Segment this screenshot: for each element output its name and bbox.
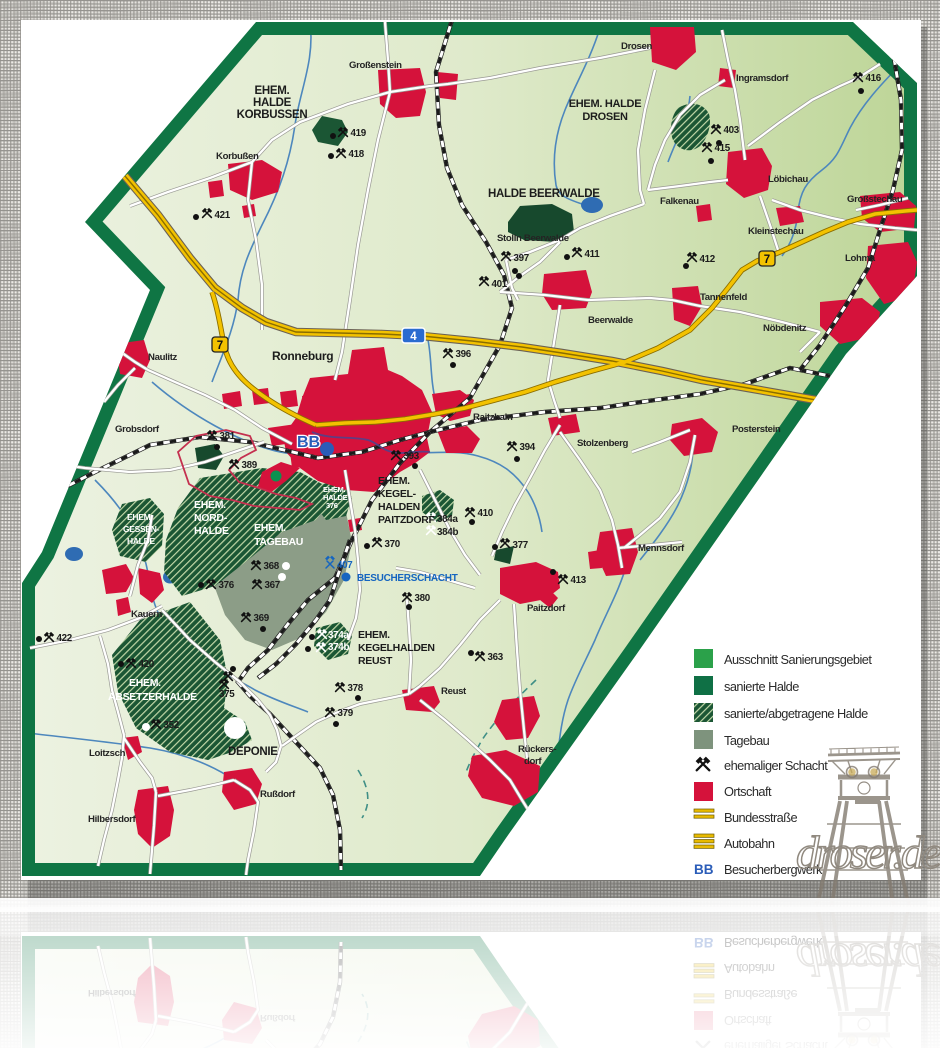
svg-text:412: 412 [700,254,716,265]
svg-text:394: 394 [520,442,536,453]
svg-text:EHEM.: EHEM. [129,677,161,689]
svg-text:Drosen: Drosen [621,41,652,52]
svg-text:Mennsdorf: Mennsdorf [638,543,685,554]
svg-text:KEGELHALDEN: KEGELHALDEN [358,642,435,654]
svg-text:BB: BB [297,434,320,451]
svg-text:Falkenau: Falkenau [660,196,699,207]
svg-text:KORBUSSEN: KORBUSSEN [237,109,308,121]
svg-text:369: 369 [254,613,270,624]
svg-text:Kleinstechau: Kleinstechau [748,226,804,237]
svg-text:EHEM.: EHEM. [378,475,410,487]
svg-text:415: 415 [715,143,731,154]
svg-text:420: 420 [139,659,155,670]
svg-text:4: 4 [410,331,417,343]
svg-text:Nöbdenitz: Nöbdenitz [763,323,807,334]
svg-text:Beerwalde: Beerwalde [588,315,633,326]
svg-text:Ingramsdorf: Ingramsdorf [736,73,789,84]
svg-text:Bundesstraße: Bundesstraße [724,810,798,825]
svg-text:376: 376 [219,580,235,591]
svg-text:HALDE: HALDE [194,525,229,537]
svg-text:411: 411 [585,249,601,260]
svg-text:Korbußen: Korbußen [216,151,259,162]
svg-text:376: 376 [326,501,338,510]
svg-text:352: 352 [164,720,180,731]
svg-text:Großstechau: Großstechau [847,194,903,205]
svg-text:DROSEN: DROSEN [582,111,628,123]
svg-text:Rückers-: Rückers- [518,744,556,755]
svg-text:396: 396 [456,349,472,360]
svg-text:401: 401 [492,279,508,290]
svg-text:Löbichau: Löbichau [768,174,808,185]
svg-text:378: 378 [348,683,364,694]
svg-text:HALDEN: HALDEN [378,501,420,513]
svg-text:EHEM. HALDE: EHEM. HALDE [569,98,641,110]
svg-text:HALDE BEERWALDE: HALDE BEERWALDE [488,188,600,200]
svg-text:HALDE: HALDE [253,97,292,109]
svg-text:Reust: Reust [441,686,467,697]
svg-text:droser.de: droser.de [796,827,940,879]
svg-text:EHEM.: EHEM. [194,499,226,511]
svg-text:Kauern: Kauern [131,609,162,620]
svg-text:Paitzdorf: Paitzdorf [527,603,566,614]
svg-text:421: 421 [215,210,231,221]
svg-text:EHEM.: EHEM. [254,522,286,534]
svg-text:410: 410 [478,508,494,519]
svg-text:Stolzenberg: Stolzenberg [577,438,629,449]
svg-text:EHEM.: EHEM. [255,85,290,97]
svg-text:379: 379 [338,708,354,719]
svg-text:384a: 384a [437,514,458,525]
svg-text:419: 419 [351,128,367,139]
svg-text:HALDE: HALDE [127,536,155,546]
svg-text:403: 403 [724,125,740,136]
svg-text:375: 375 [219,689,235,700]
svg-text:BESUCHERSCHACHT: BESUCHERSCHACHT [357,573,458,584]
svg-text:Loitzsch: Loitzsch [89,748,126,759]
svg-text:368: 368 [264,561,280,572]
svg-text:sanierte/abgetragene Halde: sanierte/abgetragene Halde [724,706,868,721]
svg-text:Autobahn: Autobahn [724,836,775,851]
svg-text:380: 380 [415,593,431,604]
svg-text:374b: 374b [328,642,349,653]
svg-text:NORD-: NORD- [194,512,228,524]
svg-text:sanierte Halde: sanierte Halde [724,679,799,694]
svg-text:363: 363 [488,652,504,663]
svg-text:Tagebau: Tagebau [724,733,770,748]
svg-text:Grobsdorf: Grobsdorf [115,424,160,435]
svg-text:DEPONIE: DEPONIE [228,746,278,758]
svg-text:GESSEN-: GESSEN- [123,524,160,534]
svg-text:377: 377 [513,540,529,551]
svg-text:Ortschaft: Ortschaft [724,784,772,799]
svg-text:374a: 374a [328,630,349,641]
svg-text:REUST: REUST [358,655,393,667]
svg-text:413: 413 [571,575,587,586]
svg-text:Raitzhain: Raitzhain [473,412,513,423]
svg-text:Hilbersdorf: Hilbersdorf [88,814,136,825]
svg-text:KEGEL-: KEGEL- [378,488,417,500]
svg-text:EHEM.: EHEM. [127,512,152,522]
svg-text:393: 393 [404,451,420,462]
svg-text:EHEM.: EHEM. [358,629,390,641]
svg-text:Ronneburg: Ronneburg [272,349,333,363]
svg-text:Ausschnitt Sanierungsgebiet: Ausschnitt Sanierungsgebiet [724,652,872,667]
svg-text:Tannenfeld: Tannenfeld [700,292,747,303]
svg-text:381: 381 [220,431,236,442]
svg-text:7: 7 [217,340,223,352]
svg-text:422: 422 [57,633,73,644]
svg-text:Posterstein: Posterstein [732,424,781,435]
svg-text:Rußdorf: Rußdorf [260,789,296,800]
svg-text:384b: 384b [437,527,458,538]
svg-text:BB: BB [694,862,714,877]
svg-text:Naulitz: Naulitz [148,352,178,363]
svg-text:Lohma: Lohma [845,253,876,264]
svg-text:397: 397 [514,253,530,264]
svg-text:ABSETZERHALDE: ABSETZERHALDE [108,691,197,703]
svg-text:370: 370 [385,539,401,550]
svg-text:418: 418 [349,149,365,160]
svg-text:407: 407 [337,560,353,571]
svg-text:416: 416 [866,73,882,84]
svg-text:dorf: dorf [524,756,542,767]
svg-text:PAITZDORF: PAITZDORF [378,514,435,526]
svg-text:389: 389 [242,460,258,471]
svg-text:Großenstein: Großenstein [349,60,402,71]
svg-text:ehemaliger Schacht: ehemaliger Schacht [724,758,828,773]
svg-text:7: 7 [764,254,770,266]
svg-text:TAGEBAU: TAGEBAU [254,536,303,548]
svg-text:367: 367 [265,580,281,591]
svg-text:Stolln Beerwalde: Stolln Beerwalde [497,233,569,244]
